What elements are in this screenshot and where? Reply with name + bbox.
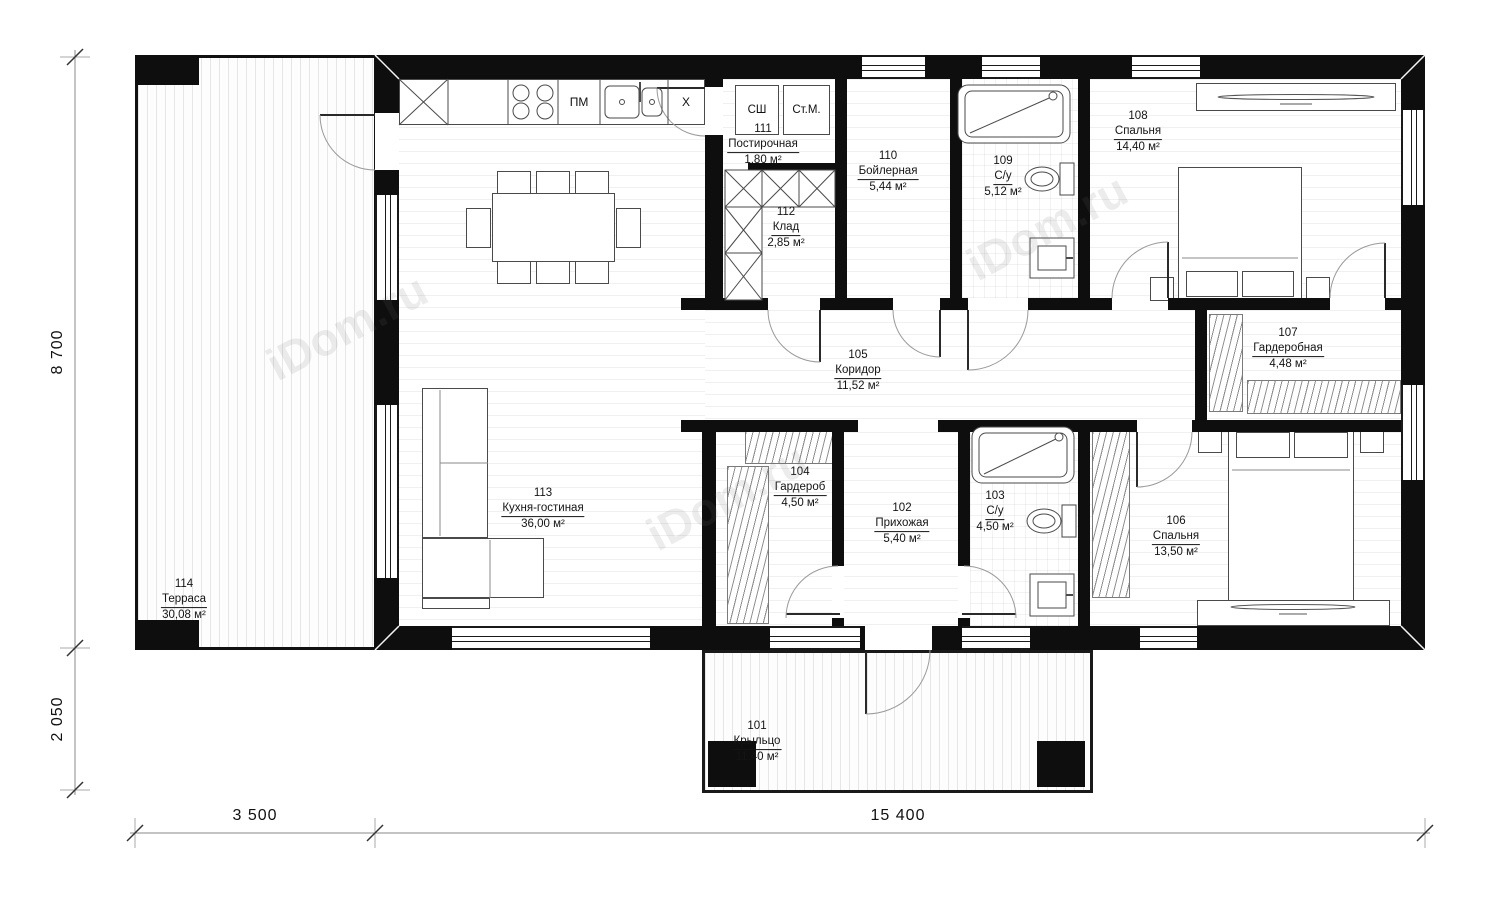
window-bedroom108-right [1401, 110, 1425, 205]
room-number: 102 [874, 501, 929, 516]
room-label-109: 109 С/у 5,12 м² [984, 154, 1021, 200]
fridge-label: Х [682, 95, 690, 109]
room-label-104: 104 Гардероб 4,50 м² [774, 465, 827, 511]
room-area: 5,40 м² [874, 532, 929, 547]
wall-stub-103 [958, 618, 970, 626]
wardrobe-bedroom-108 [1196, 83, 1396, 111]
room-area: 11,40 м² [733, 750, 782, 765]
room-name: Коридор [834, 363, 881, 379]
room-area: 13,50 м² [1152, 545, 1200, 560]
room-name: Крыльцо [733, 734, 782, 750]
closet-rail-107-bottom [1247, 380, 1401, 414]
room-number: 112 [767, 205, 804, 220]
room-name: С/у [985, 504, 1004, 520]
kitchen-counter [399, 79, 705, 125]
room-area: 4,50 м² [774, 496, 827, 511]
floor-plan-canvas: СШ Ст.М. [0, 0, 1498, 900]
room-area: 30,08 м² [161, 608, 207, 623]
terrace-deck [135, 55, 377, 650]
room-area: 5,12 м² [984, 185, 1021, 200]
closet-rail-104-left [727, 466, 769, 624]
pillow [1294, 432, 1348, 458]
window-bedroom106 [1140, 626, 1197, 650]
dim-width-terrace: 3 500 [232, 807, 277, 825]
porch-column-right [1037, 741, 1085, 787]
dining-chair [497, 171, 531, 194]
wall-stub-104 [832, 618, 844, 626]
wall-kitchen-laundry-b [705, 135, 723, 300]
room-label-106: 106 Спальня 13,50 м² [1152, 514, 1200, 560]
terrace-corner-wall-top [135, 55, 199, 85]
dishwasher-label: ПМ [570, 95, 589, 109]
window-bedroom106-right [1401, 385, 1425, 480]
pillow [1186, 271, 1238, 297]
nightstand [1198, 429, 1222, 453]
washing-machine-label: Ст.М. [792, 104, 820, 116]
room-area: 4,48 м² [1252, 357, 1324, 372]
room-name: Терраса [161, 592, 207, 608]
wall-corridor-top-4 [1028, 298, 1112, 310]
dining-chair [616, 208, 641, 248]
window-bath109 [982, 55, 1040, 79]
room-name: Кухня-гостиная [501, 501, 584, 517]
wall-corridor-bottom-2 [938, 420, 1137, 432]
room-number: 106 [1152, 514, 1200, 529]
room-area: 4,50 м² [976, 520, 1013, 535]
room-number: 114 [161, 577, 207, 592]
room-label-107: 107 Гардеробная 4,48 м² [1252, 326, 1324, 372]
room-name: Гардероб [774, 480, 827, 496]
room-area: 1,80 м² [727, 153, 799, 168]
room-number: 108 [1114, 109, 1162, 124]
window-living-left-2 [375, 405, 399, 578]
room-label-101: 101 Крыльцо 11,40 м² [733, 719, 782, 765]
room-name: Спальня [1114, 124, 1162, 140]
room-name: Постирочная [727, 137, 799, 153]
terrace-door-opening [375, 113, 399, 170]
dining-chair [575, 261, 609, 284]
room-number: 103 [976, 489, 1013, 504]
wall-corridor-top-1 [681, 298, 768, 310]
pillow [1242, 271, 1294, 297]
room-area: 36,00 м² [501, 517, 584, 532]
closet-rail-107-left [1209, 314, 1243, 412]
room-name: Бойлерная [858, 164, 919, 180]
wall-corridor-bottom-1 [681, 420, 858, 432]
dining-chair [536, 261, 570, 284]
dim-height-porch: 2 050 [49, 696, 67, 741]
dining-chair [575, 171, 609, 194]
wall-hallway-bath103 [958, 432, 970, 566]
window-wardrobe104 [770, 626, 860, 650]
nightstand [1360, 429, 1384, 453]
sofa-section-horizontal [422, 538, 544, 598]
wall-bath109-bedroom108 [1078, 79, 1090, 310]
room-number: 110 [858, 149, 919, 164]
room-area: 11,52 м² [834, 379, 881, 394]
wall-corridor-top-2 [820, 298, 893, 310]
sofa-footrest [422, 598, 490, 609]
wall-living-wardrobe104 [702, 432, 716, 626]
room-number: 105 [834, 348, 881, 363]
window-boiler [862, 55, 925, 79]
dim-height-main: 8 700 [49, 329, 67, 374]
room-area: 14,40 м² [1114, 140, 1162, 155]
drying-cabinet-label: СШ [748, 104, 767, 116]
terrace-corner-wall-bottom [135, 620, 199, 650]
closet-rail-104-top [745, 430, 833, 464]
floor-corridor [705, 310, 1195, 420]
sofa-section-vertical [422, 388, 488, 538]
window-bedroom108 [1132, 55, 1200, 79]
room-label-105: 105 Коридор 11,52 м² [834, 348, 881, 394]
dining-table [492, 193, 615, 262]
pillow [1236, 432, 1290, 458]
wall-corridor-wardrobe107 [1195, 310, 1207, 420]
room-number: 111 [727, 122, 799, 137]
room-number: 107 [1252, 326, 1324, 341]
room-label-108: 108 Спальня 14,40 м² [1114, 109, 1162, 155]
room-name: Гардеробная [1252, 341, 1324, 357]
wall-bath103-bedroom106 [1078, 420, 1090, 626]
room-area: 2,85 м² [767, 236, 804, 251]
wall-corridor-top-5 [1168, 298, 1330, 310]
room-label-103: 103 С/у 4,50 м² [976, 489, 1013, 535]
room-name: Спальня [1152, 529, 1200, 545]
tv-cabinet-bedroom-106 [1197, 600, 1390, 626]
room-number: 113 [501, 486, 584, 501]
dining-chair [497, 261, 531, 284]
window-living-left-1 [375, 195, 399, 300]
room-label-102: 102 Прихожая 5,40 м² [874, 501, 929, 547]
window-living-room [452, 626, 650, 650]
room-area: 5,44 м² [858, 180, 919, 195]
room-label-110: 110 Бойлерная 5,44 м² [858, 149, 919, 195]
room-name: Прихожая [874, 516, 929, 532]
room-label-114: 114 Терраса 30,08 м² [161, 577, 207, 623]
room-name: С/у [993, 169, 1012, 185]
room-number: 101 [733, 719, 782, 734]
room-name: Клад [772, 220, 801, 236]
wall-laundry-boiler [835, 79, 847, 298]
room-label-111: 111 Постирочная 1,80 м² [727, 122, 799, 168]
dining-chair [536, 171, 570, 194]
window-bath103 [962, 626, 1030, 650]
closet-rail-106 [1092, 430, 1130, 598]
wall-corridor-top-6 [1385, 298, 1401, 310]
wall-kitchen-laundry-a [705, 79, 723, 87]
room-number: 109 [984, 154, 1021, 169]
wall-boiler-bath109 [950, 79, 962, 298]
dim-width-house: 15 400 [871, 807, 926, 825]
room-label-113: 113 Кухня-гостиная 36,00 м² [501, 486, 584, 532]
dining-chair [466, 208, 491, 248]
entrance-door-opening [865, 626, 932, 650]
room-number: 104 [774, 465, 827, 480]
wall-corridor-bottom-3 [1192, 420, 1401, 432]
wall-corridor-top-3 [940, 298, 968, 310]
wall-wardrobe104-hallway [832, 432, 844, 566]
room-label-112: 112 Клад 2,85 м² [767, 205, 804, 251]
